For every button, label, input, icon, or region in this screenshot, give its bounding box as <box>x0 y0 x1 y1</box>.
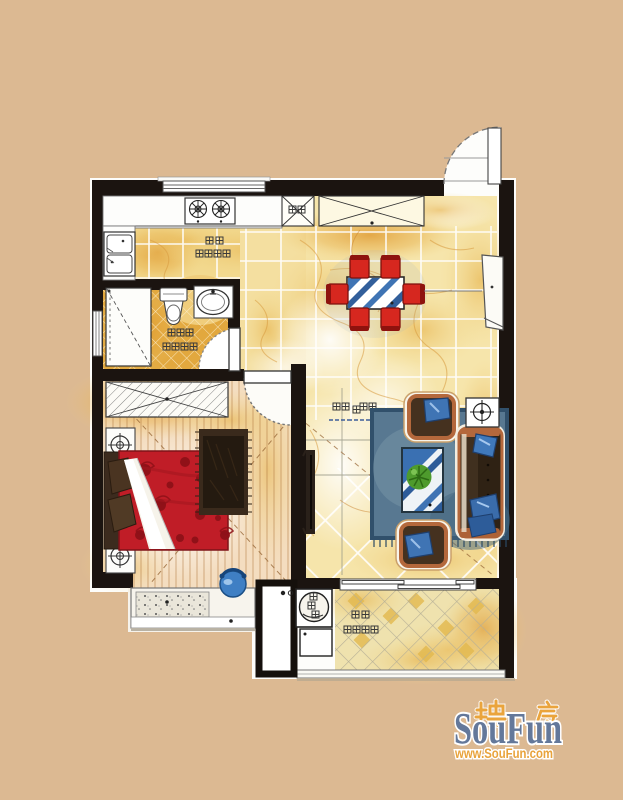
svg-text:www.SouFun.com: www.SouFun.com <box>454 746 553 761</box>
